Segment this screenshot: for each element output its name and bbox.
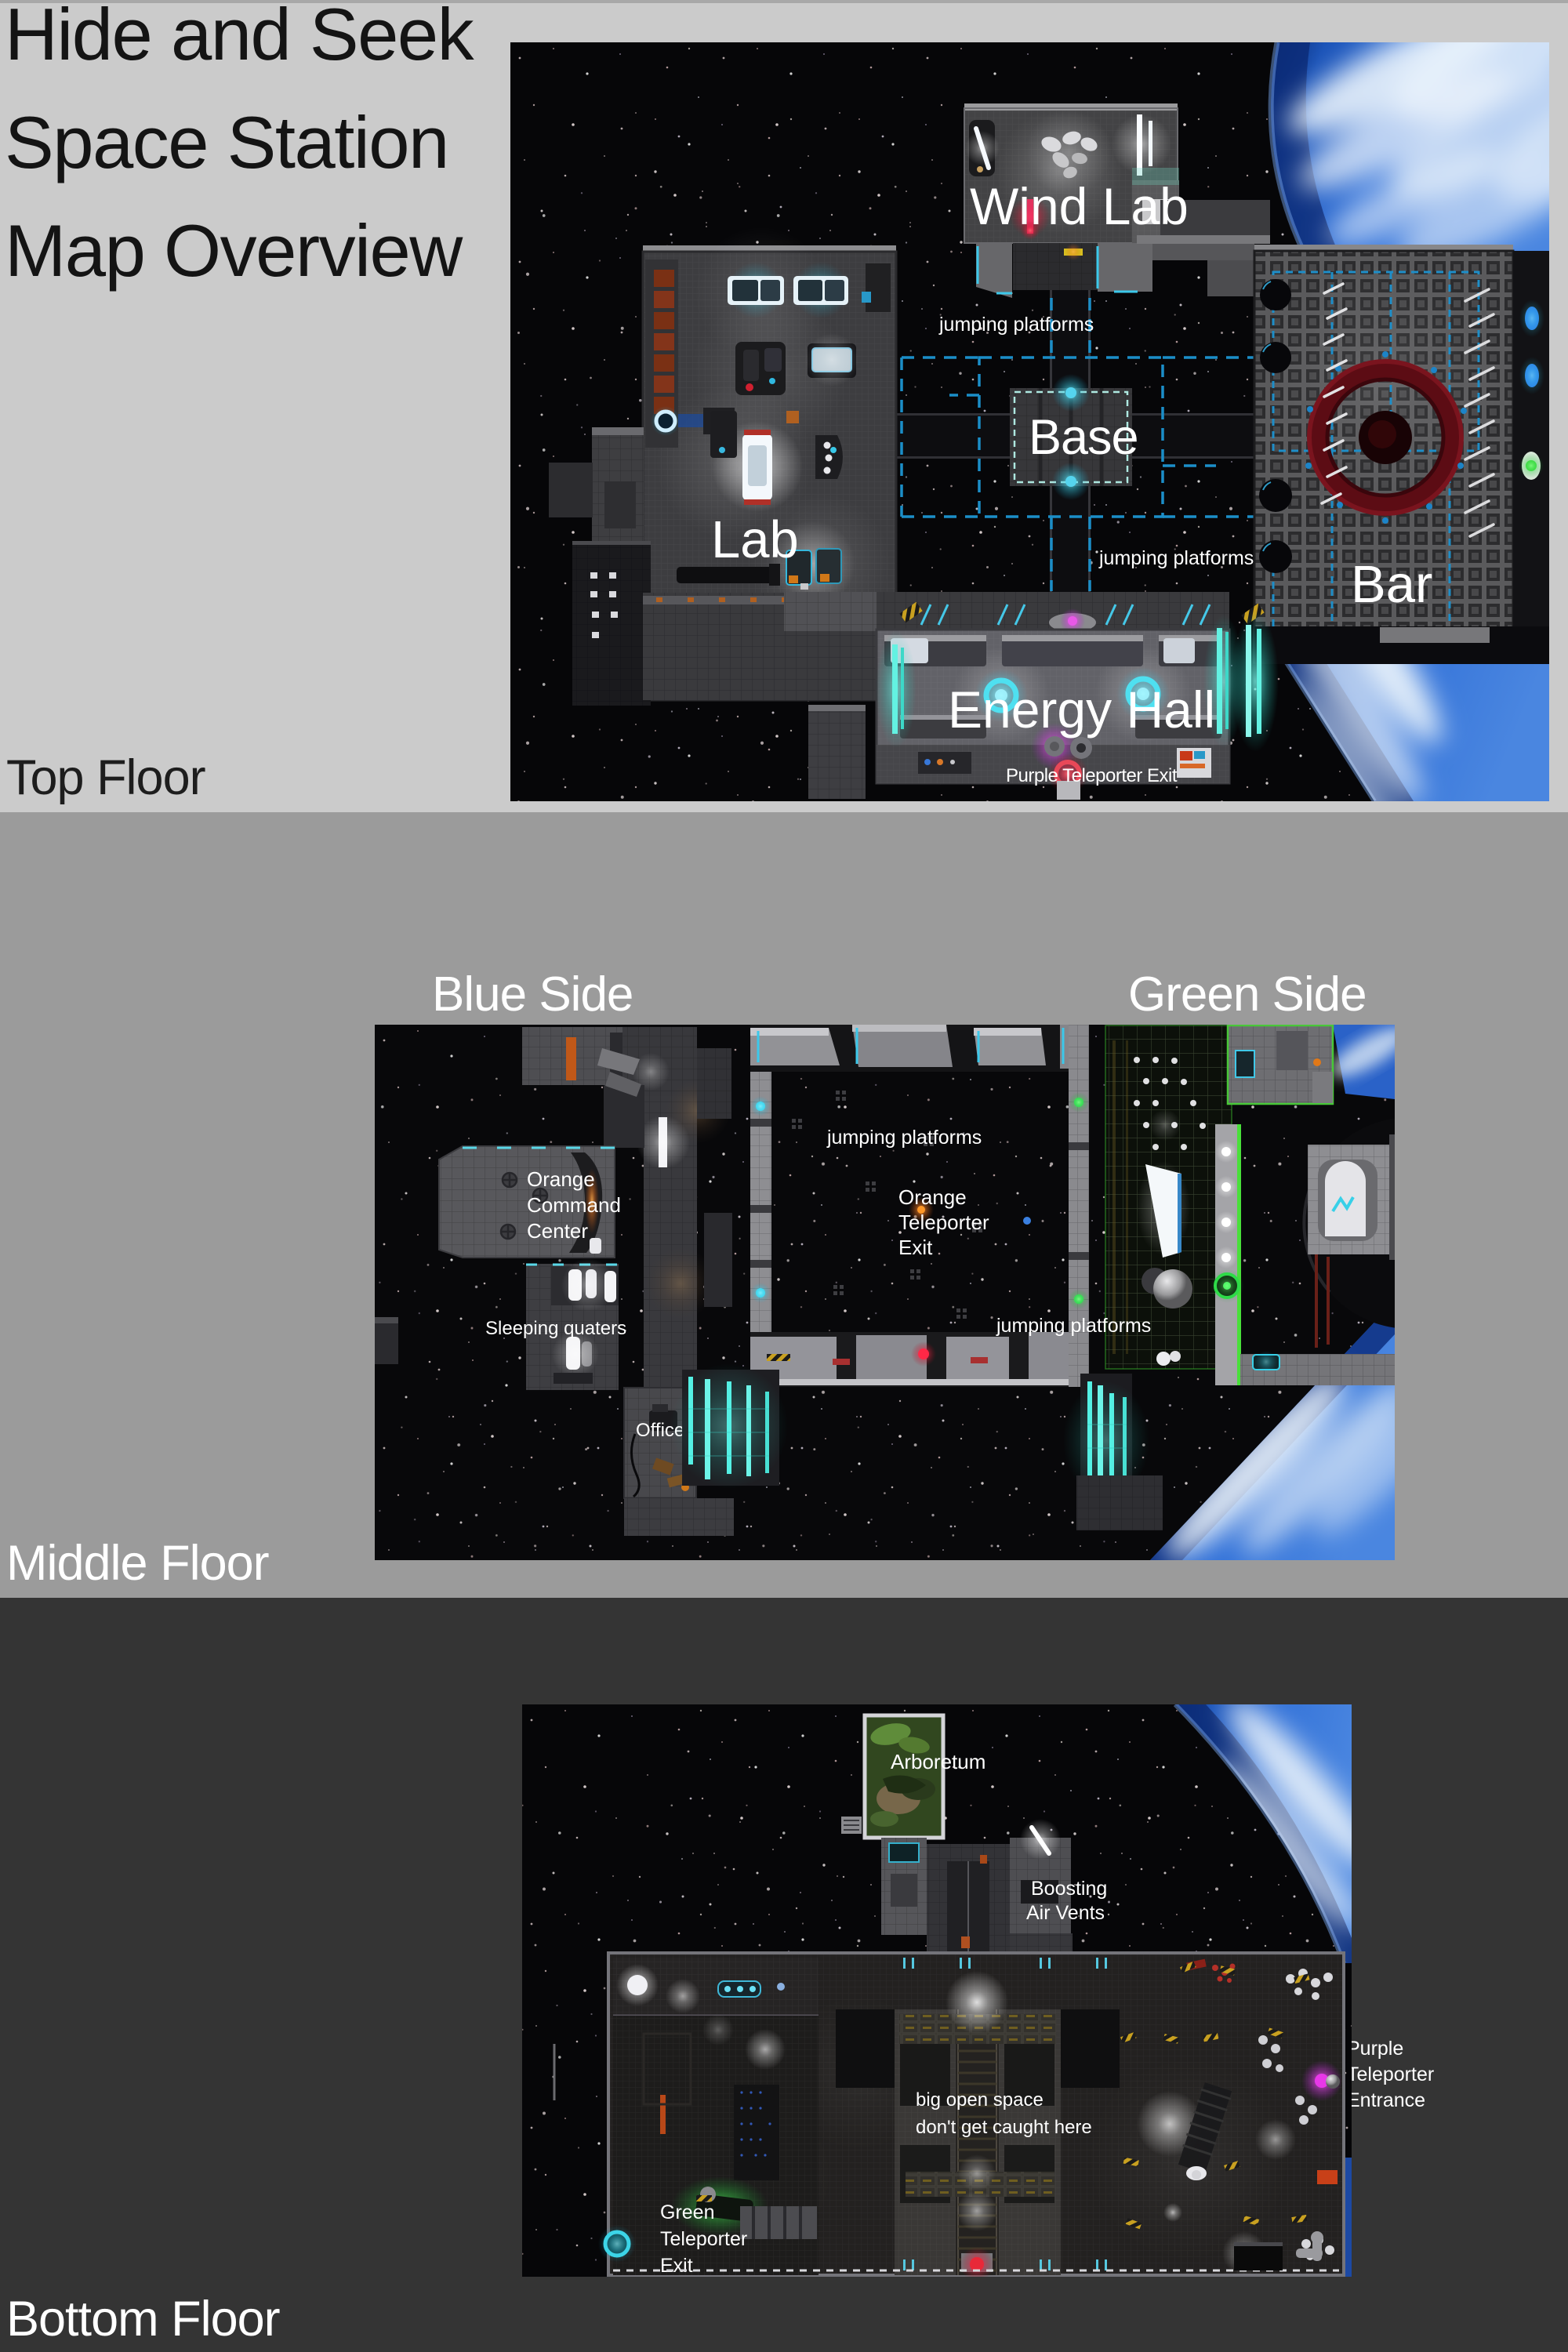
svg-text:Boosting: Boosting [1031, 1878, 1107, 1900]
svg-text:jumping platforms: jumping platforms [938, 314, 1094, 336]
svg-text:Exit: Exit [898, 1236, 933, 1259]
svg-text:Orange: Orange [527, 1167, 595, 1191]
svg-text:Green: Green [660, 2201, 714, 2223]
svg-text:Teleporter: Teleporter [660, 2228, 747, 2250]
svg-text:don't get caught here: don't get caught here [916, 2117, 1092, 2138]
svg-text:Arboretum: Arboretum [891, 1750, 985, 1773]
svg-text:Purple Teleporter Exit: Purple Teleporter Exit [1006, 765, 1178, 786]
svg-text:Wind Lab: Wind Lab [970, 177, 1189, 235]
svg-text:jumping platforms: jumping platforms [996, 1315, 1151, 1337]
svg-text:Bar: Bar [1351, 555, 1432, 614]
svg-text:Center: Center [527, 1219, 588, 1243]
svg-text:Base: Base [1029, 410, 1138, 465]
svg-text:Air Vents: Air Vents [1026, 1902, 1105, 1924]
svg-text:Lab: Lab [711, 510, 799, 569]
svg-text:Sleeping quaters: Sleeping quaters [485, 1318, 626, 1339]
svg-text:Exit: Exit [660, 2255, 693, 2277]
svg-text:jumping platforms: jumping platforms [826, 1127, 982, 1149]
svg-text:Teleporter: Teleporter [898, 1210, 989, 1234]
svg-text:Energy Hall: Energy Hall [948, 681, 1215, 739]
svg-text:big open space: big open space [916, 2089, 1044, 2111]
svg-text:Orange: Orange [898, 1185, 967, 1209]
svg-text:Command: Command [527, 1193, 621, 1217]
svg-text:jumping platforms: jumping platforms [1098, 547, 1254, 569]
